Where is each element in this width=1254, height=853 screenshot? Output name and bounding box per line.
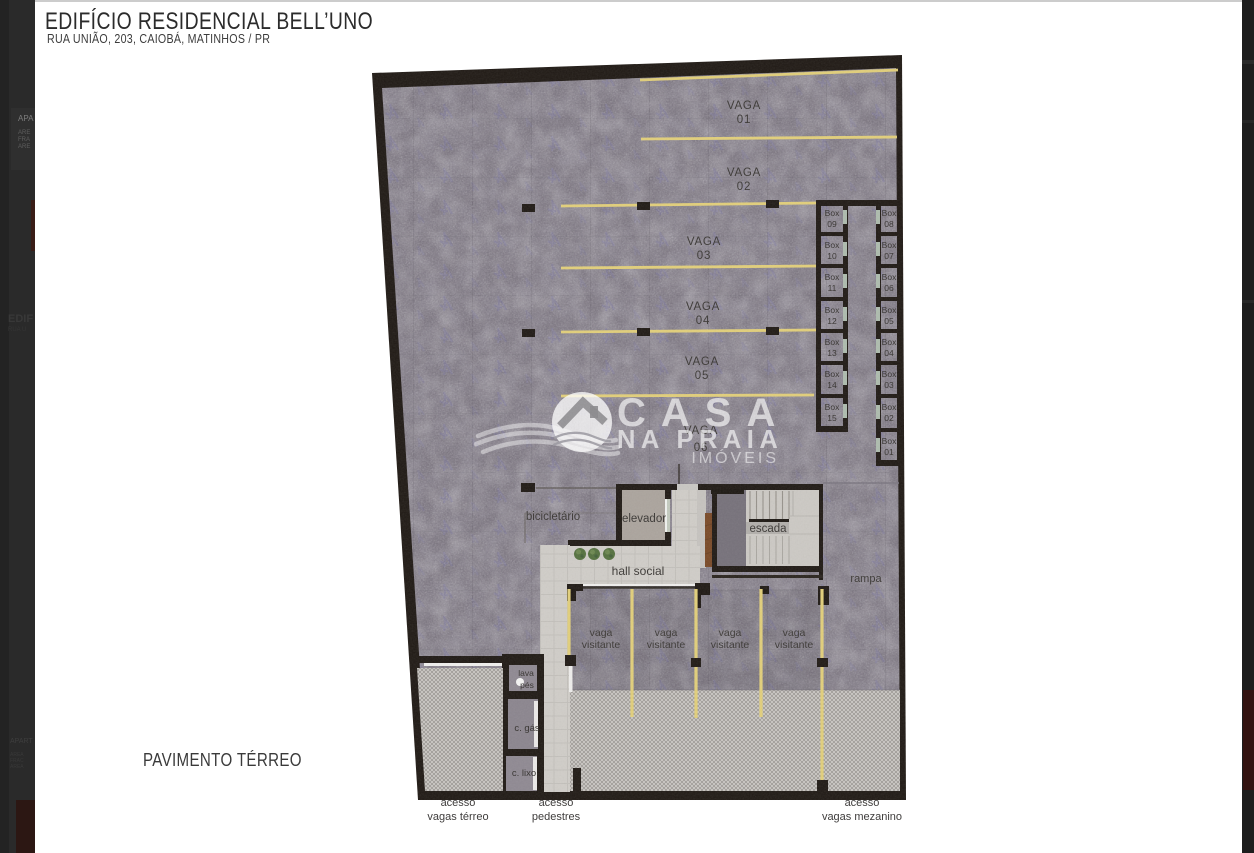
svg-text:pedestres: pedestres — [532, 811, 581, 823]
svg-text:acesso: acesso — [845, 797, 880, 809]
svg-text:acesso: acesso — [539, 797, 574, 809]
svg-text:vagas térreo: vagas térreo — [427, 811, 488, 823]
svg-text:vagas mezanino: vagas mezanino — [822, 811, 902, 823]
svg-text:acesso: acesso — [441, 797, 476, 809]
